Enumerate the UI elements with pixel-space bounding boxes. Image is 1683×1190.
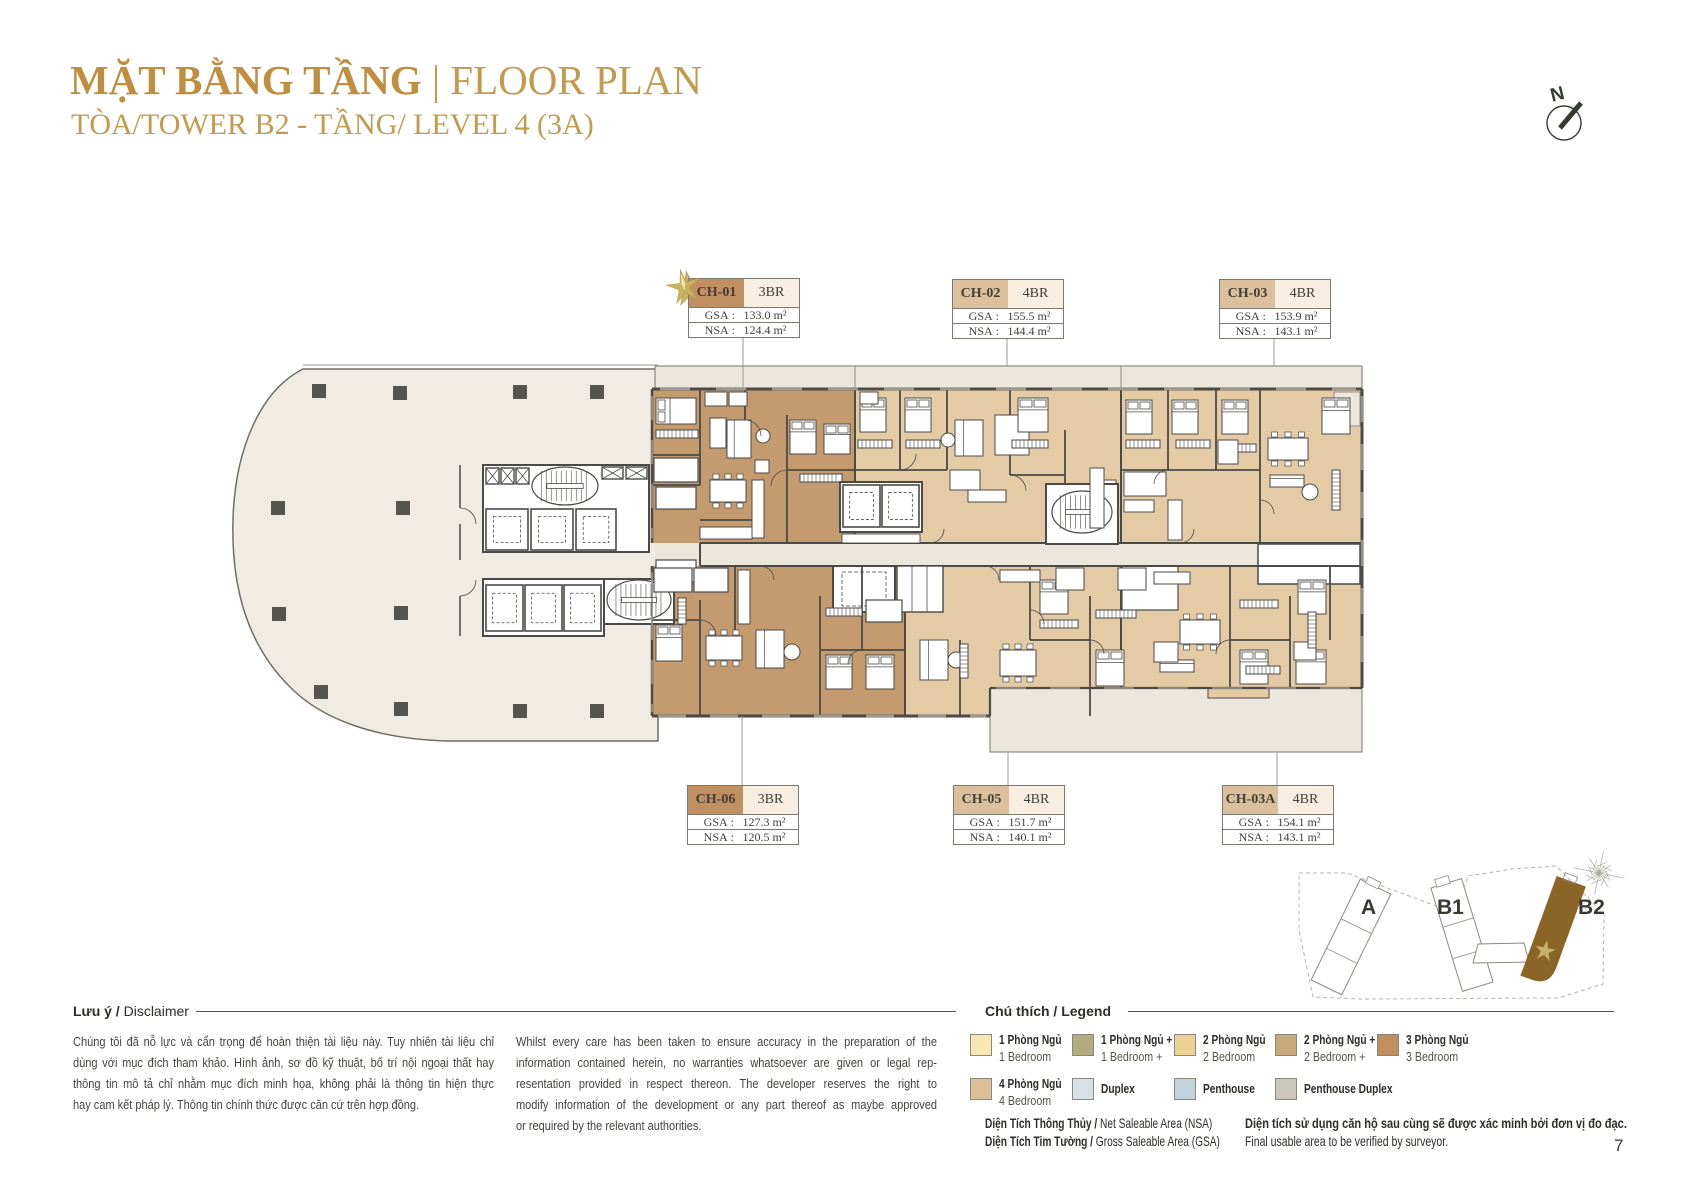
svg-text:B1: B1: [1437, 896, 1464, 919]
svg-text:A: A: [1361, 896, 1376, 919]
svg-text:B2: B2: [1578, 896, 1605, 919]
svg-text:N: N: [1548, 83, 1566, 107]
